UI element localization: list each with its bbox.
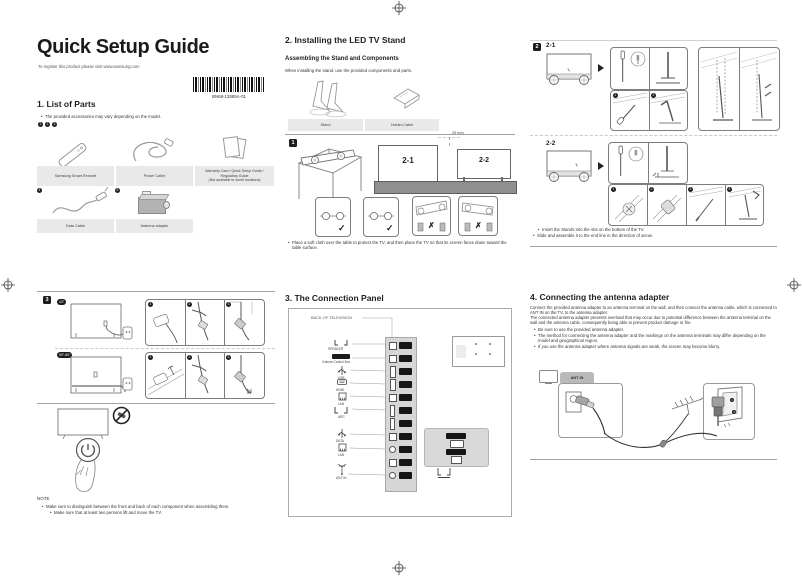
data-icon <box>338 429 346 438</box>
tv-2-2-illustration: 2-2 <box>457 149 511 179</box>
speaker-icon <box>334 339 348 346</box>
panel-detail-inset <box>452 336 505 367</box>
power-cable-illustration <box>128 138 178 166</box>
lan2-label: LAN <box>338 453 344 457</box>
tv-2-2-label: 2-2 <box>458 157 510 164</box>
note-bullet-1: Make sure to distinguish between the fro… <box>46 504 229 509</box>
warranty-line-1: Warranty Card / Quick Setup Guide / <box>205 169 263 174</box>
cross-mark: ✗ <box>428 221 435 230</box>
ant-in-label: ANT IN <box>336 476 346 480</box>
antenna-bullet-2: The method for connecting the antenna ad… <box>538 333 776 343</box>
detail-2-1-top <box>610 47 688 90</box>
check-mark: ✓ <box>386 223 394 234</box>
arrow-right-icon <box>598 64 604 72</box>
part-badge-1: 1 <box>38 122 43 127</box>
detail-2-2-bottom: 1 2 3 4 <box>608 184 764 226</box>
antenna-bullet-3: If you use the antenna adapter where ant… <box>538 344 776 349</box>
data-cable-illustration <box>50 193 112 219</box>
section4-heading: 4. Connecting the antenna adapter <box>530 292 669 302</box>
registration-mark-top <box>392 1 406 15</box>
warranty-line-3: (Not available in some locations) <box>205 178 263 183</box>
divider <box>285 134 515 135</box>
part-label-power-cable: Power Cable <box>116 166 193 186</box>
part-badge-4: 4 <box>37 188 42 193</box>
lan2-icon <box>338 443 347 452</box>
note-bullet-2: Make sure that at least two persons lift… <box>54 510 162 515</box>
part-badge-5: 5 <box>115 188 120 193</box>
hdmi-icon <box>337 379 347 387</box>
soft-cloth-bullet: Place a soft cloth over the table to pro… <box>292 240 510 250</box>
barcode <box>193 77 265 92</box>
tv-back-50-illustration <box>70 356 136 398</box>
holder-cable-label: Holder-Cable <box>365 119 439 131</box>
divider <box>530 40 777 41</box>
stand-label-text: Stand <box>321 123 331 127</box>
no-tools-icon <box>112 406 131 425</box>
cable-routing-50-panels: 1 2 3 <box>145 352 265 399</box>
placement-ok-panel-2: ✓ <box>363 197 399 237</box>
step3-badge: 3 <box>43 296 51 304</box>
section2-heading: 2. Installing the LED TV Stand <box>285 35 405 45</box>
remote-illustration <box>57 142 88 169</box>
part-badge-3: 3 <box>52 122 57 127</box>
placement-ok-panel-1: ✓ <box>315 197 351 237</box>
usb-icon <box>338 366 346 375</box>
measure-line-v <box>449 137 450 146</box>
speaker-label: SPEAKER <box>328 347 343 351</box>
part-label-remote: Samsung Smart Remote <box>37 166 114 186</box>
placement-bad-panel-1: ✗ <box>412 196 451 236</box>
divider <box>37 291 275 292</box>
volume-control-box-icon <box>332 354 350 359</box>
detail-2-1-large <box>698 47 780 131</box>
antenna-cables <box>530 378 780 460</box>
section2-subheading: Assembling the Stand and Components <box>285 56 399 62</box>
volume-control-box-label: Volume Control Box <box>322 360 350 364</box>
registration-mark-left <box>1 278 15 292</box>
part-label-data-cable-text: Data Cable <box>66 224 85 228</box>
part-label-warranty: Warranty Card / Quick Setup Guide / Regu… <box>195 166 274 186</box>
part-label-data-cable: Data Cable <box>37 219 114 233</box>
parts-note: The provided accessories may vary depend… <box>45 114 161 119</box>
detail-2-2-top <box>608 142 688 184</box>
barcode-text: BN68-12885A-01 <box>193 94 265 99</box>
side-port-inset <box>424 428 489 467</box>
holder-cable-label-text: Holder-Cable <box>391 123 413 127</box>
placement-bad-panel-2: ✗ <box>458 196 498 236</box>
divider-dashed <box>55 348 275 349</box>
part-label-power-cable-text: Power Cable <box>144 174 166 178</box>
holder-cable-illustration <box>390 86 422 112</box>
check-mark: ✓ <box>338 223 346 234</box>
section2-intro: When installing the stand, use the provi… <box>285 68 412 73</box>
cross-mark: ✗ <box>475 221 482 230</box>
tv-back-2-1-illustration <box>546 53 592 87</box>
part-label-antenna-adapter-text: Antenna adapter <box>140 224 168 228</box>
model-2-1-heading: 2-1 <box>546 42 555 49</box>
part-label-remote-text: Samsung Smart Remote <box>55 174 97 178</box>
size-43-badge: 43" <box>57 299 66 305</box>
model-2-2-heading: 2-2 <box>546 140 555 147</box>
measure-label: 25 mm <box>452 131 464 135</box>
page-title: Quick Setup Guide <box>37 36 209 59</box>
arrow-right-icon <box>598 162 604 170</box>
divider-dashed <box>530 135 777 136</box>
register-subtitle: To register this product please visit ww… <box>38 64 139 69</box>
arc-icon <box>334 406 348 414</box>
divider <box>530 246 777 247</box>
tv-2-1-label: 2-1 <box>379 156 437 165</box>
slide-assemble-bullet: Slide and assemble it to the end line in… <box>537 233 653 238</box>
part-label-antenna-adapter: Antenna adapter <box>116 219 193 233</box>
ant-in-icon <box>337 464 347 475</box>
stand-label: Stand <box>288 119 363 131</box>
power-button-hand-illustration <box>62 436 114 494</box>
registration-mark-right <box>787 278 801 292</box>
section3-heading: 3. The Connection Panel <box>285 293 384 303</box>
tv-back-2-2-illustration <box>546 150 592 184</box>
cable-routing-43-panels: 1 2 3 <box>145 299 265 346</box>
insert-stands-bullet: Insert the Stands into the slot on the b… <box>542 227 644 232</box>
divider <box>530 459 777 460</box>
antenna-bullet-1: Be sure to use the provided antenna adap… <box>538 327 776 332</box>
lan-icon <box>338 392 347 401</box>
manual-page: Quick Setup Guide To register this produ… <box>0 0 802 576</box>
registration-mark-bottom <box>392 561 406 575</box>
tv-back-43-illustration <box>70 303 136 343</box>
section1-heading: 1. List of Parts <box>37 99 96 109</box>
divider <box>37 403 275 404</box>
note-heading: NOTE <box>37 496 50 501</box>
tv-2-1-illustration: 2-1 <box>378 145 438 183</box>
detail-2-1-bottom: 1 2 <box>610 90 688 131</box>
stand-legs-illustration <box>306 80 348 118</box>
arc-label: ARC <box>338 415 345 419</box>
part-badge-2: 2 <box>45 122 50 127</box>
shelf-illustration <box>374 181 517 194</box>
bottom-bracket-icon <box>436 468 452 478</box>
step2-badge: 2 <box>533 43 541 51</box>
antenna-para-2: The connected antenna adapter prevents o… <box>530 316 778 326</box>
